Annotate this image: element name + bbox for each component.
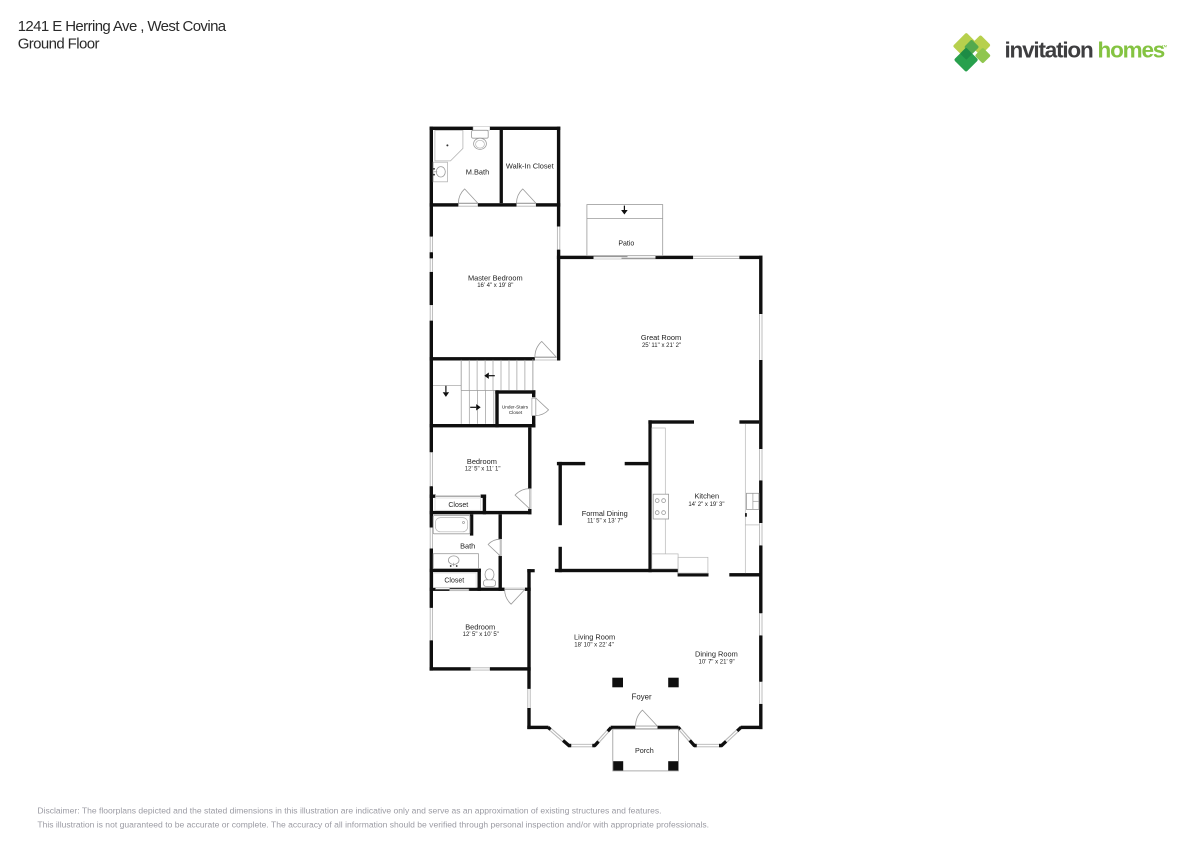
svg-text:12’ 5" x 11’ 1": 12’ 5" x 11’ 1": [465, 466, 501, 472]
svg-text:12’ 5" x 10’ 5": 12’ 5" x 10’ 5": [463, 632, 499, 638]
svg-text:Bedroom: Bedroom: [467, 457, 497, 466]
svg-text:10’ 7" x 21’ 9": 10’ 7" x 21’ 9": [699, 659, 735, 665]
svg-text:11’ 5" x 13’ 7": 11’ 5" x 13’ 7": [587, 519, 623, 525]
svg-text:Porch: Porch: [635, 746, 654, 755]
svg-text:25’ 11" x 21’ 2": 25’ 11" x 21’ 2": [642, 343, 681, 349]
svg-text:Master Bedroom: Master Bedroom: [468, 273, 523, 282]
svg-text:Ground Floor: Ground Floor: [18, 35, 100, 52]
svg-text:Walk-In Closet: Walk-In Closet: [506, 162, 554, 171]
svg-text:14’ 2" x 19’ 3": 14’ 2" x 19’ 3": [688, 502, 724, 508]
svg-text:Closet: Closet: [509, 410, 523, 415]
svg-text:Formal Dining: Formal Dining: [582, 509, 628, 518]
svg-text:This illustration is not guara: This illustration is not guaranteed to b…: [37, 820, 709, 830]
svg-text:invitation homes: invitation homes: [1005, 37, 1165, 62]
svg-text:Great Room: Great Room: [641, 333, 681, 342]
svg-text:Closet: Closet: [444, 578, 464, 585]
svg-text:Disclaimer: The floorplans dep: Disclaimer: The floorplans depicted and …: [37, 806, 661, 816]
svg-text:Bedroom: Bedroom: [465, 622, 495, 631]
svg-text:Closet: Closet: [448, 502, 468, 509]
svg-text:Patio: Patio: [618, 240, 634, 247]
svg-text:Bath: Bath: [460, 541, 475, 550]
svg-text:Foyer: Foyer: [632, 693, 652, 702]
svg-text:Living Room: Living Room: [574, 633, 615, 642]
svg-text:™: ™: [1161, 44, 1167, 51]
svg-text:Kitchen: Kitchen: [694, 492, 719, 501]
svg-text:1241 E Herring Ave , West Covi: 1241 E Herring Ave , West Covina: [18, 18, 227, 35]
svg-text:18’ 10" x 22’ 4": 18’ 10" x 22’ 4": [574, 643, 614, 649]
svg-text:Dining Room: Dining Room: [695, 650, 738, 659]
svg-text:16’ 4" x 19’ 8": 16’ 4" x 19’ 8": [477, 283, 513, 289]
svg-text:M.Bath: M.Bath: [466, 168, 489, 177]
